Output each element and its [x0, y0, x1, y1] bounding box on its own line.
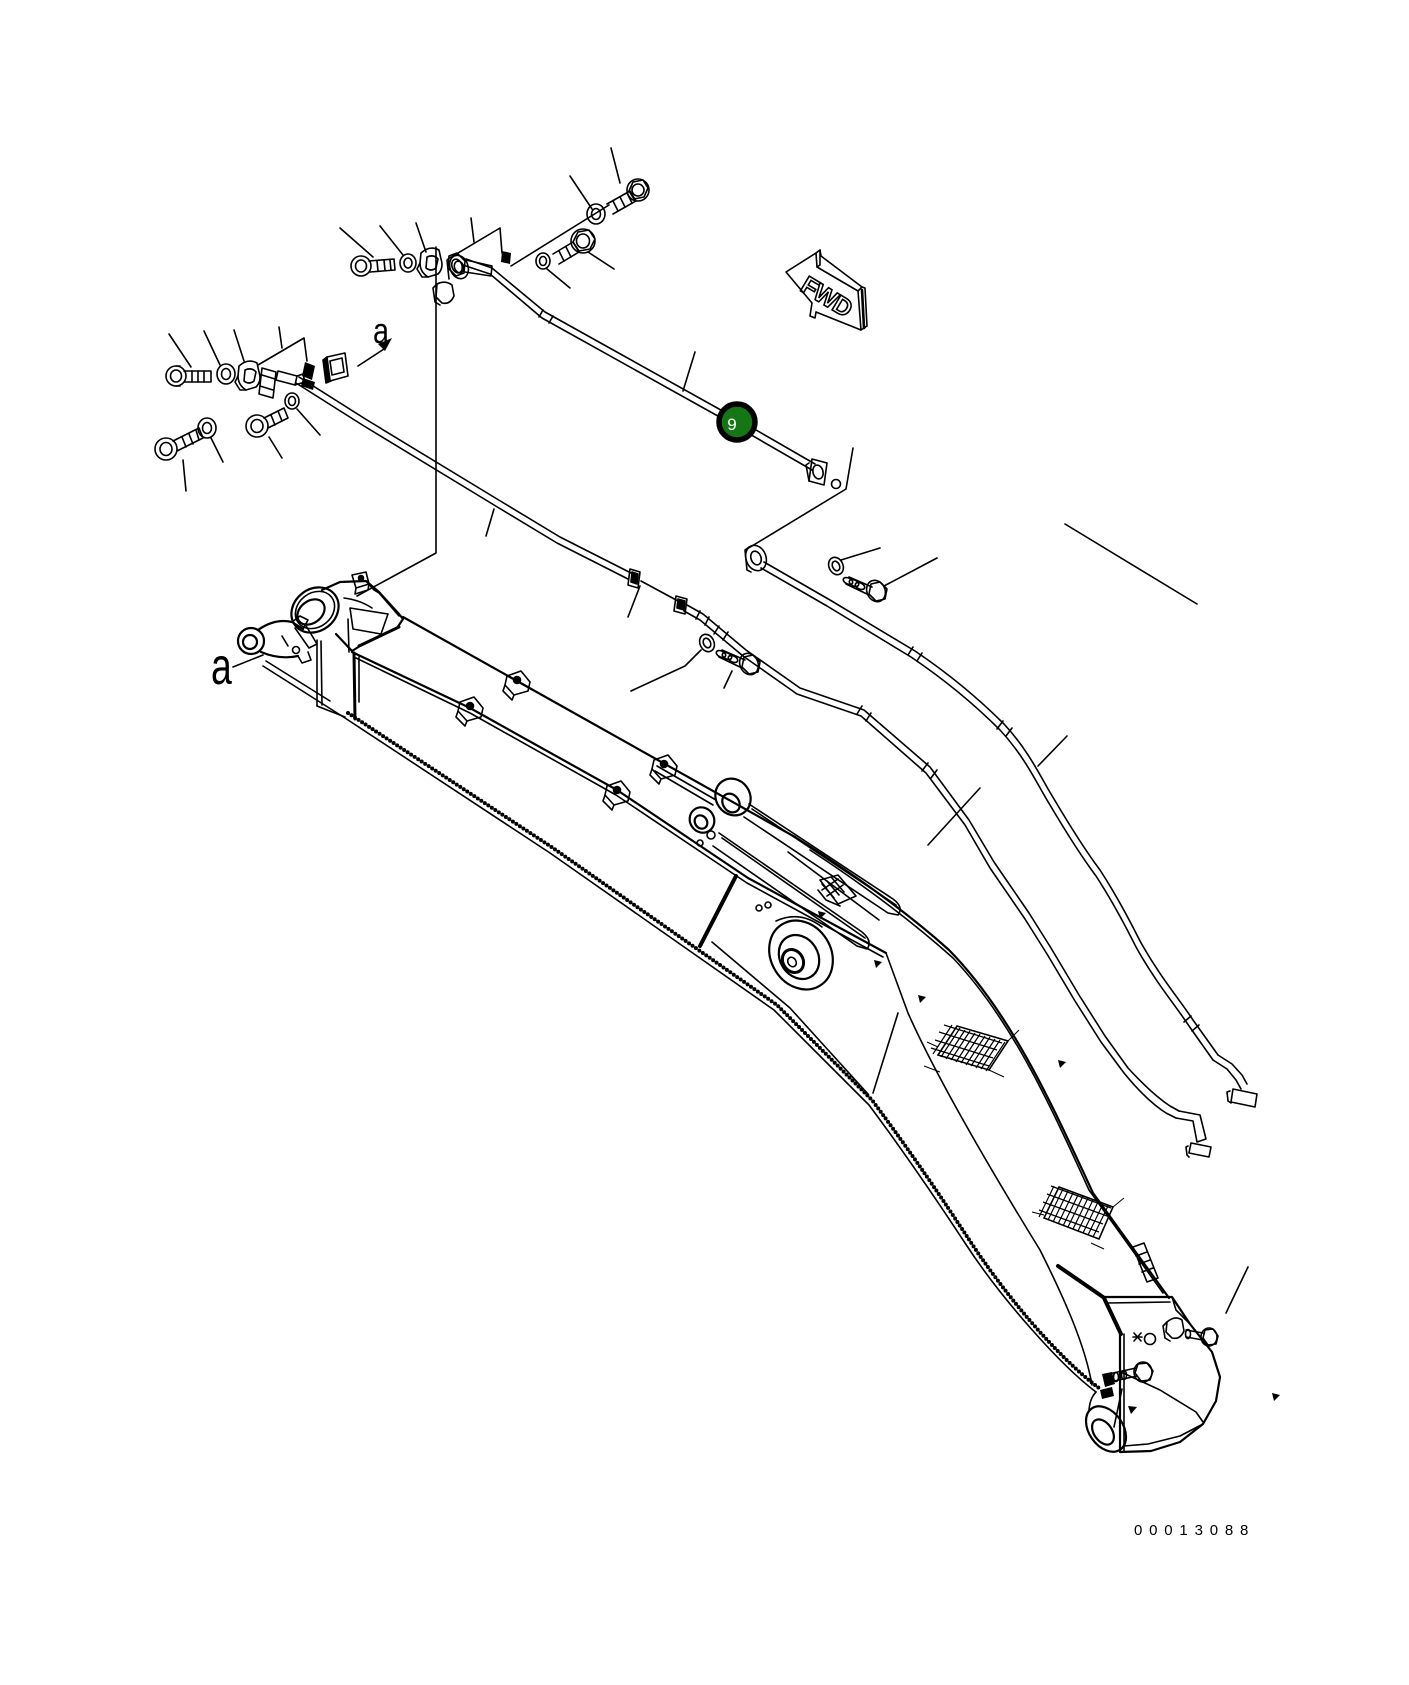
svg-text:a: a — [211, 637, 232, 696]
svg-text:00013088: 00013088 — [1134, 1522, 1255, 1539]
svg-text:9: 9 — [727, 415, 736, 434]
svg-text:a: a — [373, 310, 390, 351]
